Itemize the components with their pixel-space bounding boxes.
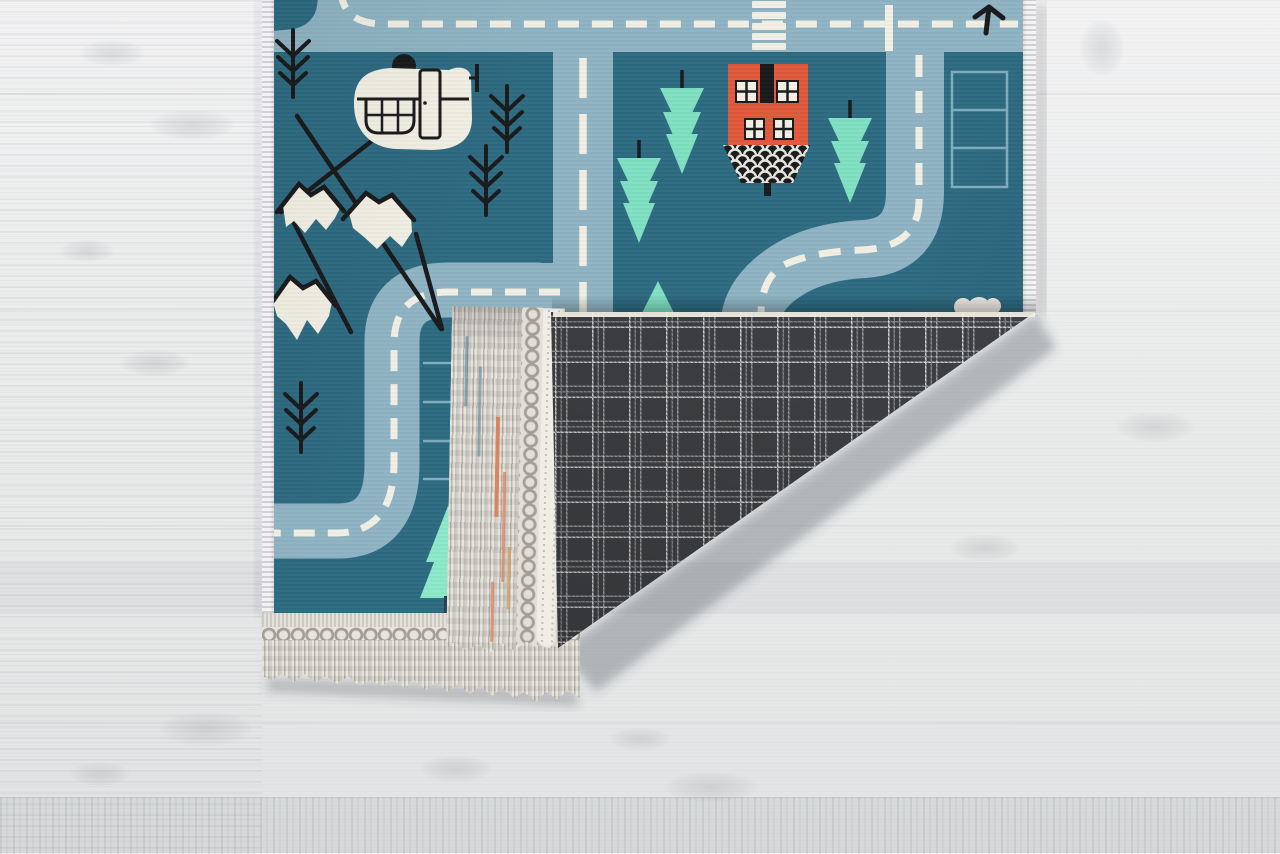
rug-left-edge-shadow [255,2,261,614]
orange-fringe-thread [490,582,494,642]
rug-showing-through-fringe [464,336,468,406]
fold-crease-shadow [552,295,1036,313]
rug-showing-through-fringe [477,366,482,456]
scene [0,0,1280,853]
fold-top-edge-binding [553,312,1035,317]
fold-edge-fringe [446,306,544,656]
rug-right-edge-shadow [1037,4,1045,314]
tan-fringe-thread [507,547,511,609]
orange-fringe-thread [494,417,500,517]
rug-right-binding [1023,0,1036,316]
orange-fringe-thread [501,472,506,582]
rug-left-binding [262,0,274,618]
